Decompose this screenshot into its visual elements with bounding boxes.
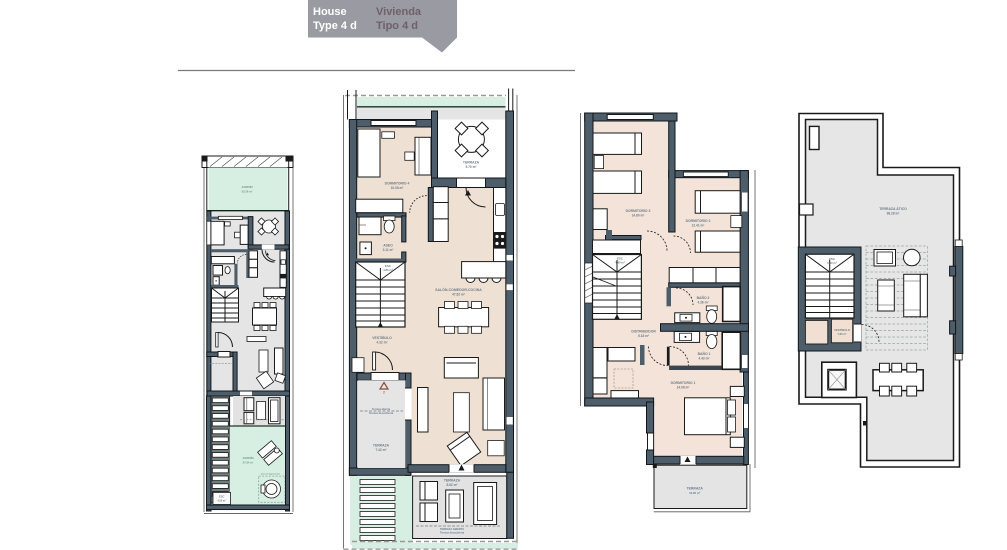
svg-text:Type 4 d: Type 4 d bbox=[313, 20, 357, 32]
svg-text:ESC: ESC bbox=[219, 495, 224, 499]
svg-text:57.84 m²: 57.84 m² bbox=[243, 461, 254, 465]
svg-text:TERRAZA: TERRAZA bbox=[687, 487, 704, 491]
svg-text:TERRAZA ÁTICO: TERRAZA ÁTICO bbox=[879, 206, 907, 211]
svg-text:7.80 m²: 7.80 m² bbox=[838, 332, 847, 336]
svg-text:6.18 m²: 6.18 m² bbox=[638, 334, 649, 338]
svg-text:DORMITORIO 4: DORMITORIO 4 bbox=[385, 182, 410, 186]
svg-text:47.82 m²: 47.82 m² bbox=[452, 292, 465, 296]
svg-text:ASEO: ASEO bbox=[383, 244, 393, 248]
svg-text:14.80 m²: 14.80 m² bbox=[632, 214, 645, 218]
svg-text:16.85 m²: 16.85 m² bbox=[689, 491, 700, 495]
svg-text:4.80 m²: 4.80 m² bbox=[383, 268, 393, 272]
svg-text:10.08 m²: 10.08 m² bbox=[391, 186, 404, 190]
svg-text:Terraza descubierta: Terraza descubierta bbox=[369, 411, 394, 415]
svg-text:BAÑO 2: BAÑO 2 bbox=[697, 295, 710, 300]
svg-text:Vivienda: Vivienda bbox=[376, 6, 422, 18]
svg-text:SALÓN-COMEDOR-COCINA: SALÓN-COMEDOR-COCINA bbox=[435, 287, 482, 292]
svg-text:VESTÍBULO: VESTÍBULO bbox=[372, 335, 392, 340]
svg-text:TERRAZA: TERRAZA bbox=[444, 479, 461, 483]
svg-text:Tipo 4 d: Tipo 4 d bbox=[376, 20, 418, 32]
svg-text:3.11 m²: 3.11 m² bbox=[383, 248, 394, 252]
svg-text:TERRAZA: TERRAZA bbox=[463, 161, 480, 165]
svg-text:DISTRIBUIDOR: DISTRIBUIDOR bbox=[631, 330, 656, 334]
svg-text:98.28 m²: 98.28 m² bbox=[887, 212, 900, 216]
svg-text:VESTÍBULO: VESTÍBULO bbox=[834, 327, 851, 332]
svg-text:4.36 m²: 4.36 m² bbox=[698, 301, 709, 305]
svg-text:TERRAZA: TERRAZA bbox=[373, 444, 390, 448]
svg-text:JARDÍN: JARDÍN bbox=[242, 455, 253, 460]
svg-text:Terraza abierta: Terraza abierta bbox=[372, 407, 391, 411]
svg-text:TERRAZA ABIERTA: TERRAZA ABIERTA bbox=[440, 527, 464, 531]
svg-text:House: House bbox=[313, 6, 347, 18]
svg-text:JARDÍN: JARDÍN bbox=[241, 184, 252, 189]
svg-text:4.43 m²: 4.43 m² bbox=[699, 357, 710, 361]
svg-text:4.32 m²: 4.32 m² bbox=[377, 341, 388, 345]
svg-text:6.50 m²: 6.50 m² bbox=[218, 498, 226, 502]
svg-text:5.40 m²: 5.40 m² bbox=[827, 261, 837, 265]
svg-text:12.41 m²: 12.41 m² bbox=[692, 224, 705, 228]
svg-text:8.62 m²: 8.62 m² bbox=[447, 483, 458, 487]
svg-text:55.26 m²: 55.26 m² bbox=[242, 190, 253, 194]
svg-text:4.80 m²: 4.80 m² bbox=[615, 261, 625, 265]
svg-text:7.42 m²: 7.42 m² bbox=[376, 448, 387, 452]
svg-text:DORMITORIO 1: DORMITORIO 1 bbox=[671, 381, 696, 385]
svg-text:DORMITORIO 2: DORMITORIO 2 bbox=[686, 219, 711, 223]
svg-text:DORMITORIO 3: DORMITORIO 3 bbox=[626, 209, 651, 213]
svg-text:Jacuzzi (opcional): Jacuzzi (opcional) bbox=[261, 474, 280, 476]
svg-text:2: 2 bbox=[383, 391, 385, 395]
svg-text:9.70 m²: 9.70 m² bbox=[466, 165, 477, 169]
svg-text:14.08 m²: 14.08 m² bbox=[677, 386, 690, 390]
svg-text:BAÑO 1: BAÑO 1 bbox=[698, 351, 711, 356]
svg-text:Terraza descubierta: Terraza descubierta bbox=[440, 531, 465, 535]
